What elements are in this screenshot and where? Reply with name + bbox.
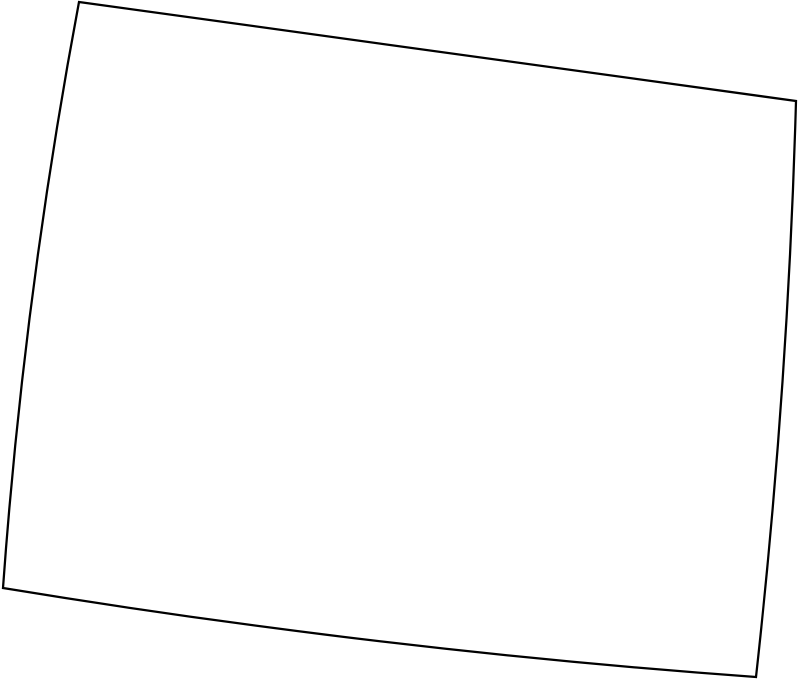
state-border-outline	[3, 2, 796, 677]
map-canvas	[0, 0, 800, 683]
state-outline-svg	[0, 0, 800, 683]
